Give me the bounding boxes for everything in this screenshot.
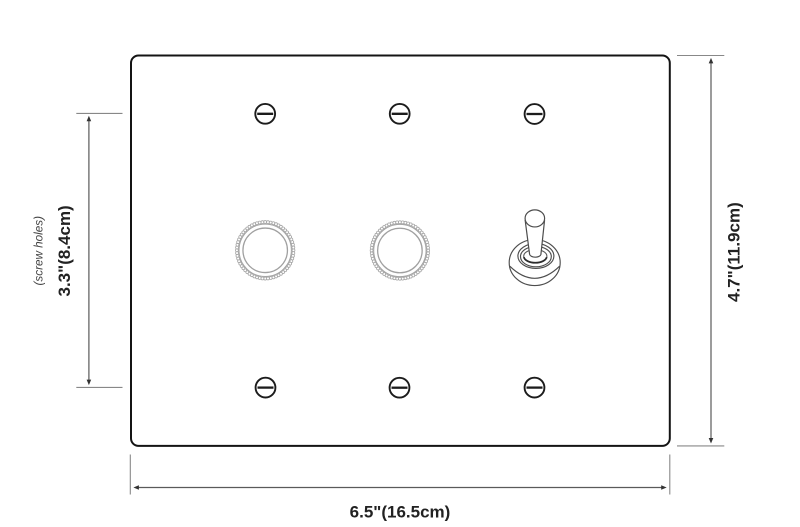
svg-text:6.5"(16.5cm): 6.5"(16.5cm) [350, 503, 451, 522]
svg-text:4.7"(11.9cm): 4.7"(11.9cm) [725, 202, 744, 302]
svg-text:3.3"(8.4cm): 3.3"(8.4cm) [55, 205, 74, 296]
svg-text:(screw holes): (screw holes) [33, 216, 46, 286]
